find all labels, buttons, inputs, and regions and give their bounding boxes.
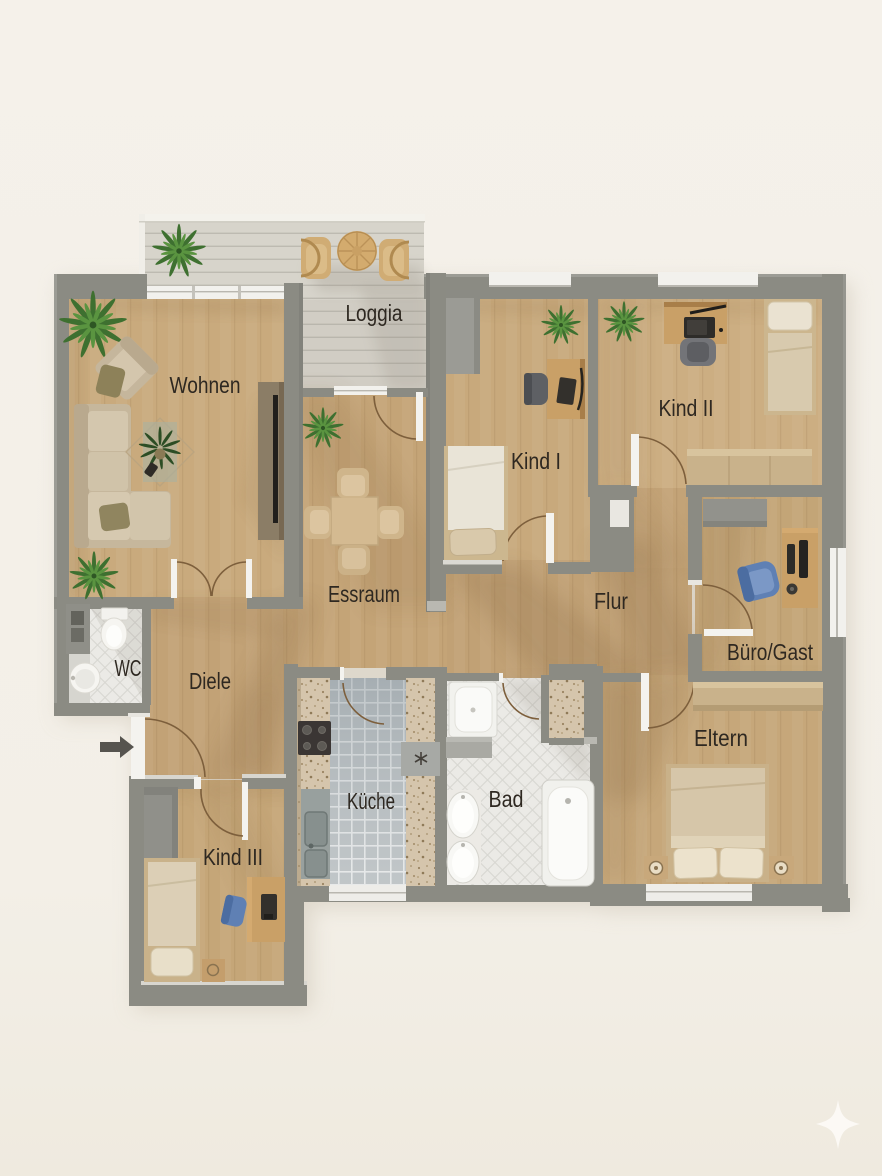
- svg-text:WC: WC: [115, 655, 142, 681]
- svg-text:Loggia: Loggia: [346, 300, 403, 326]
- svg-text:Diele: Diele: [189, 668, 231, 694]
- svg-text:Wohnen: Wohnen: [170, 372, 241, 398]
- svg-text:Kind III: Kind III: [203, 844, 263, 870]
- svg-text:Kind II: Kind II: [659, 395, 714, 421]
- svg-text:Flur: Flur: [594, 588, 628, 614]
- svg-text:Büro/Gast: Büro/Gast: [727, 639, 814, 665]
- svg-text:Küche: Küche: [347, 788, 395, 814]
- svg-text:Eltern: Eltern: [694, 725, 748, 751]
- svg-text:Kind I: Kind I: [511, 448, 561, 474]
- svg-text:Bad: Bad: [489, 786, 524, 812]
- svg-text:Essraum: Essraum: [328, 581, 400, 607]
